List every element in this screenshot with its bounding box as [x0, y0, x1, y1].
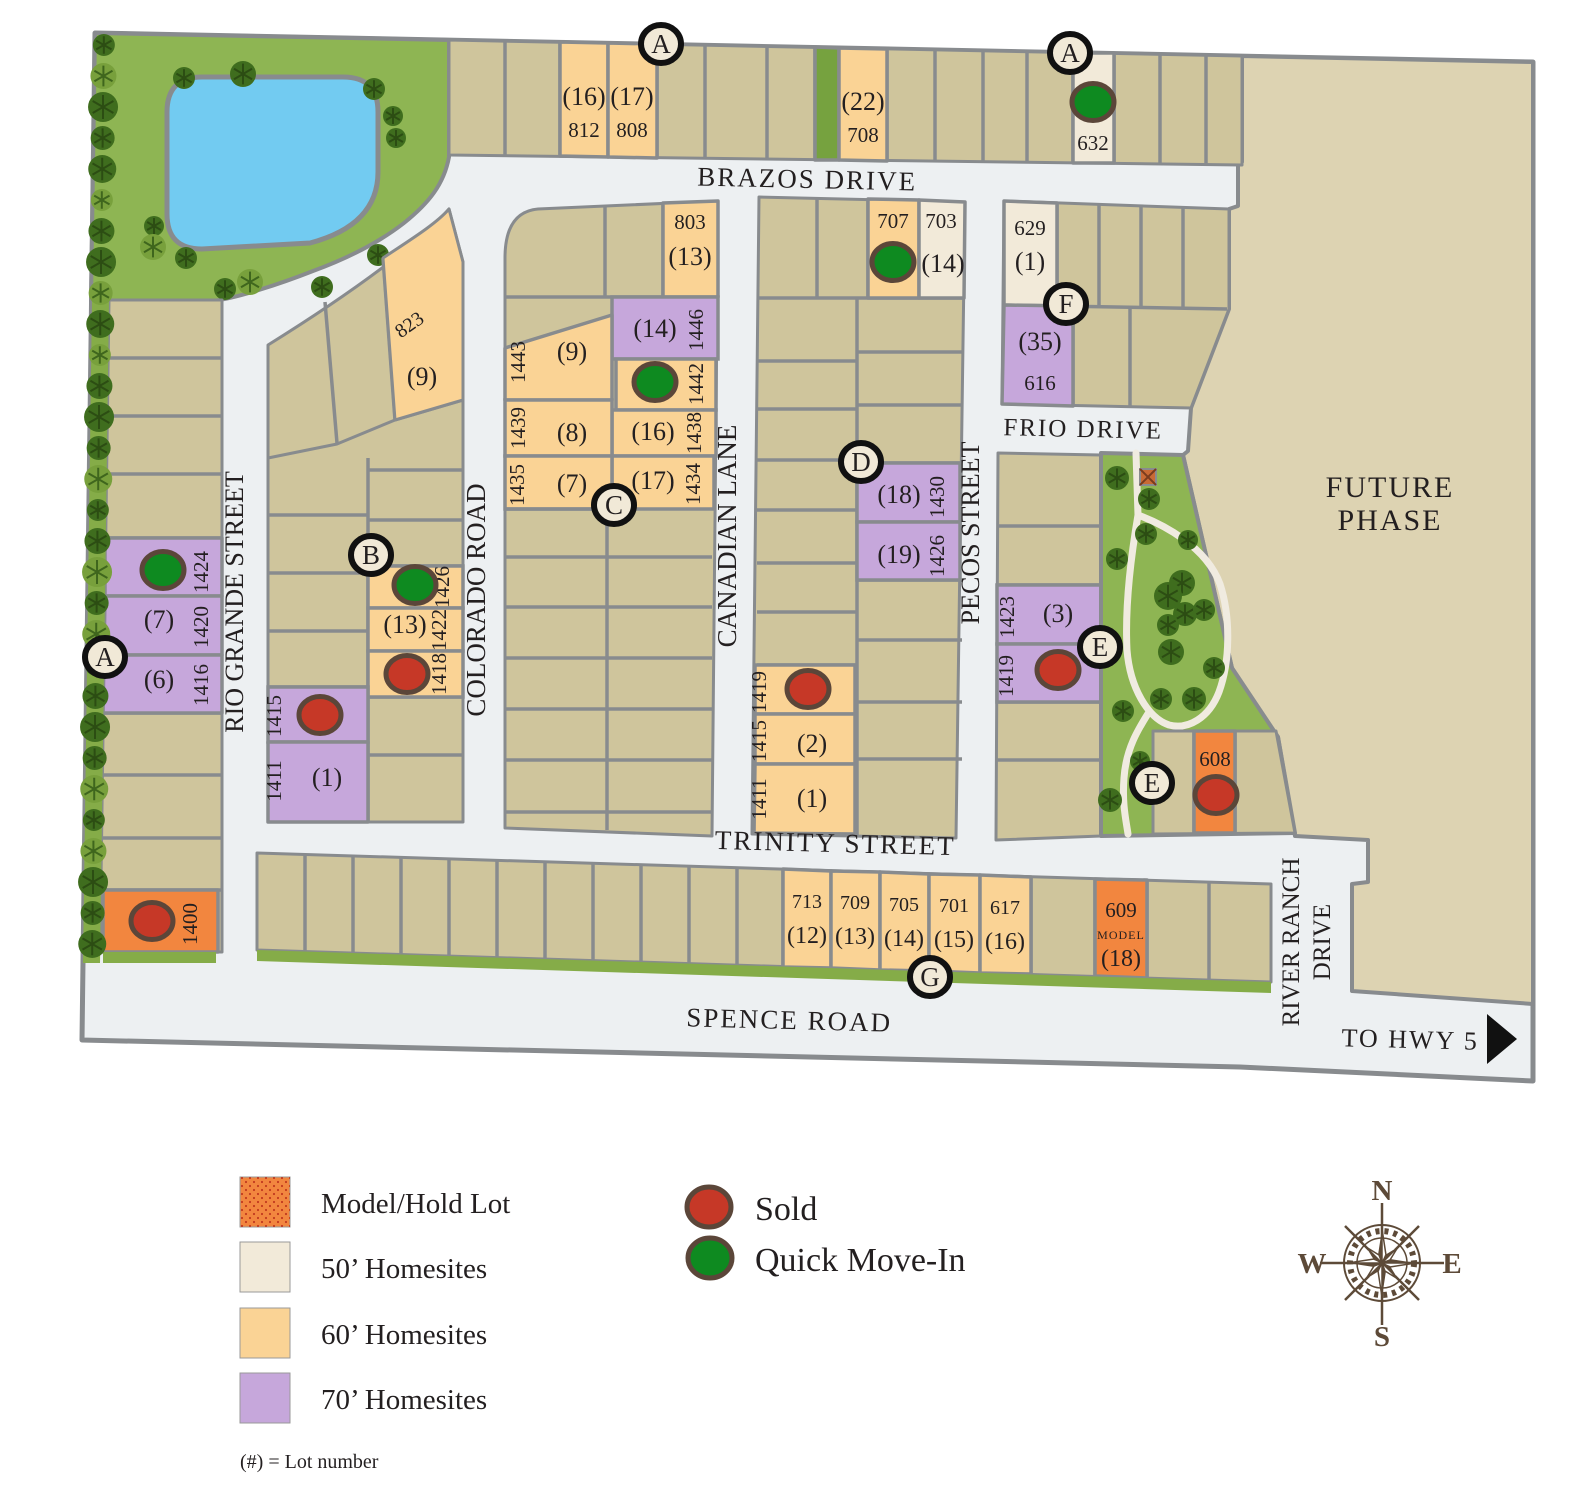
svg-text:609: 609: [1105, 898, 1137, 922]
svg-text:1420: 1420: [189, 606, 213, 648]
svg-text:(1): (1): [1015, 247, 1045, 276]
svg-text:CANADIAN LANE: CANADIAN LANE: [712, 425, 742, 648]
svg-text:(1): (1): [312, 763, 342, 792]
svg-text:(14): (14): [921, 249, 964, 278]
svg-text:(15): (15): [934, 927, 974, 953]
svg-text:701: 701: [939, 895, 969, 917]
svg-text:708: 708: [847, 123, 879, 147]
svg-text:1434: 1434: [681, 463, 705, 506]
svg-text:1422: 1422: [427, 609, 451, 651]
svg-text:(18): (18): [877, 480, 920, 509]
svg-text:617: 617: [990, 897, 1020, 919]
svg-text:A: A: [1060, 38, 1080, 68]
svg-text:TRINITY STREET: TRINITY STREET: [715, 825, 956, 861]
svg-text:A: A: [651, 29, 671, 59]
svg-text:(2): (2): [797, 729, 827, 758]
svg-text:SPENCE ROAD: SPENCE ROAD: [686, 1002, 892, 1037]
svg-text:1426: 1426: [925, 535, 949, 577]
svg-text:(#) = Lot number: (#) = Lot number: [240, 1451, 379, 1473]
svg-text:PECOS STREET: PECOS STREET: [956, 442, 985, 625]
svg-text:1435: 1435: [505, 464, 529, 506]
svg-text:1411: 1411: [262, 760, 286, 801]
svg-text:FUTURE: FUTURE: [1326, 471, 1455, 504]
svg-text:Quick Move-In: Quick Move-In: [755, 1242, 966, 1279]
svg-text:808: 808: [616, 118, 648, 142]
svg-text:F: F: [1058, 289, 1073, 319]
svg-text:(13): (13): [835, 924, 875, 950]
svg-text:TO HWY 5: TO HWY 5: [1341, 1023, 1479, 1056]
svg-text:1419: 1419: [747, 671, 771, 713]
svg-text:FRIO DRIVE: FRIO DRIVE: [1003, 414, 1163, 445]
svg-text:D: D: [851, 447, 871, 477]
svg-text:E: E: [1092, 632, 1109, 662]
svg-text:(17): (17): [631, 466, 674, 495]
svg-text:70’ Homesites: 70’ Homesites: [321, 1384, 487, 1416]
svg-text:1423: 1423: [995, 596, 1019, 638]
svg-text:629: 629: [1014, 216, 1046, 240]
svg-text:PHASE: PHASE: [1337, 504, 1442, 537]
svg-text:E: E: [1442, 1248, 1461, 1280]
svg-text:1439: 1439: [506, 407, 530, 449]
svg-text:W: W: [1298, 1248, 1327, 1280]
svg-text:BRAZOS DRIVE: BRAZOS DRIVE: [697, 162, 917, 197]
svg-text:1443: 1443: [506, 341, 530, 383]
svg-text:S: S: [1374, 1321, 1390, 1353]
svg-text:(6): (6): [144, 665, 174, 694]
svg-text:(18): (18): [1101, 946, 1141, 972]
svg-text:1411: 1411: [747, 778, 771, 819]
svg-text:1430: 1430: [925, 476, 949, 518]
svg-text:(22): (22): [841, 87, 884, 116]
svg-text:713: 713: [792, 891, 822, 913]
svg-text:(1): (1): [797, 784, 827, 813]
svg-text:RIO GRANDE STREET: RIO GRANDE STREET: [220, 471, 249, 733]
svg-text:50’ Homesites: 50’ Homesites: [321, 1253, 487, 1285]
svg-text:616: 616: [1024, 371, 1056, 395]
svg-text:(35): (35): [1018, 327, 1061, 356]
svg-text:(14): (14): [633, 314, 676, 343]
svg-text:608: 608: [1199, 747, 1231, 771]
svg-text:632: 632: [1077, 131, 1109, 155]
svg-text:1424: 1424: [189, 551, 213, 594]
svg-text:(13): (13): [668, 242, 711, 271]
svg-text:Model/Hold Lot: Model/Hold Lot: [321, 1188, 510, 1220]
svg-text:709: 709: [840, 892, 870, 914]
svg-text:N: N: [1372, 1175, 1393, 1207]
svg-text:RIVER RANCH: RIVER RANCH: [1278, 858, 1305, 1027]
svg-text:(9): (9): [407, 362, 437, 391]
svg-text:DRIVE: DRIVE: [1309, 904, 1336, 980]
svg-text:812: 812: [568, 118, 600, 142]
svg-text:60’ Homesites: 60’ Homesites: [321, 1319, 487, 1351]
svg-text:G: G: [920, 962, 940, 992]
svg-text:1442: 1442: [684, 363, 708, 405]
svg-text:1415: 1415: [747, 720, 771, 762]
svg-text:705: 705: [889, 894, 919, 916]
svg-text:(8): (8): [557, 418, 587, 447]
svg-text:C: C: [605, 490, 623, 520]
svg-text:803: 803: [674, 210, 706, 234]
svg-text:B: B: [362, 540, 380, 570]
svg-text:1418: 1418: [427, 653, 451, 695]
svg-text:(7): (7): [144, 605, 174, 634]
svg-text:COLORADO ROAD: COLORADO ROAD: [461, 483, 491, 716]
svg-text:(12): (12): [787, 923, 827, 949]
svg-text:(14): (14): [884, 926, 924, 952]
svg-text:(3): (3): [1043, 599, 1073, 628]
svg-text:1438: 1438: [682, 412, 706, 454]
svg-text:(16): (16): [985, 929, 1025, 955]
svg-text:(17): (17): [610, 82, 653, 111]
svg-text:(16): (16): [631, 417, 674, 446]
svg-text:1419: 1419: [994, 655, 1018, 697]
svg-text:1446: 1446: [684, 309, 708, 351]
svg-text:E: E: [1144, 768, 1161, 798]
svg-text:707: 707: [877, 209, 909, 233]
svg-text:(19): (19): [877, 540, 920, 569]
svg-text:703: 703: [925, 209, 957, 233]
svg-text:(16): (16): [562, 82, 605, 111]
svg-text:1400: 1400: [178, 903, 202, 945]
svg-text:1415: 1415: [262, 695, 286, 737]
svg-text:(9): (9): [557, 337, 587, 366]
svg-text:(13): (13): [383, 610, 426, 639]
svg-text:MODEL: MODEL: [1097, 928, 1145, 942]
svg-text:Sold: Sold: [755, 1191, 817, 1228]
svg-text:A: A: [95, 642, 115, 672]
svg-text:(7): (7): [557, 469, 587, 498]
svg-text:1416: 1416: [189, 664, 213, 706]
